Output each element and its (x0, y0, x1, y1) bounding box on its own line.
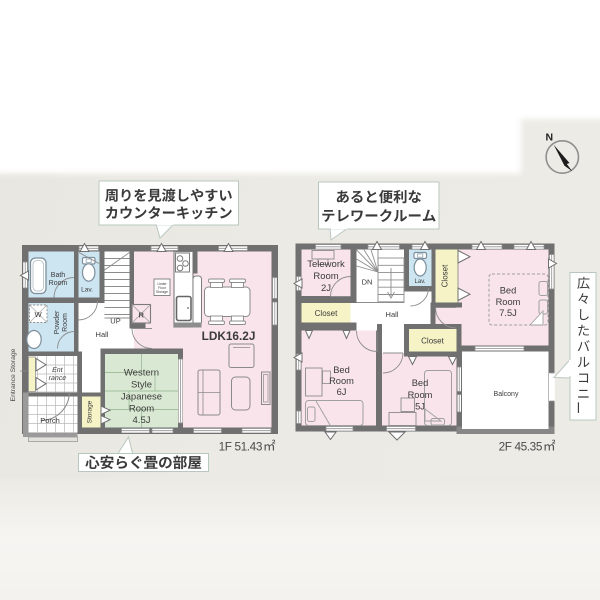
svg-text:Room: Room (329, 376, 354, 386)
svg-text:1F 51.43: 1F 51.43 (219, 440, 263, 454)
svg-text:W: W (35, 310, 43, 319)
svg-text:4.5J: 4.5J (133, 415, 151, 426)
svg-text:Closet: Closet (315, 309, 338, 318)
svg-text:Closet: Closet (421, 337, 444, 346)
svg-text:Ent: Ent (51, 367, 63, 374)
svg-text:Balcony: Balcony (494, 391, 519, 398)
svg-text:Style: Style (131, 380, 152, 391)
svg-text:Storage: Storage (87, 400, 94, 423)
svg-text:rance: rance (48, 375, 67, 382)
svg-text:Room: Room (62, 313, 69, 332)
svg-text:Room: Room (49, 280, 68, 287)
svg-text:Powder: Powder (54, 310, 61, 334)
svg-text:LDK16.2J: LDK16.2J (202, 329, 256, 343)
svg-text:R: R (138, 311, 144, 320)
svg-text:Entrance Storage: Entrance Storage (10, 348, 17, 401)
svg-text:Lav.: Lav. (81, 287, 93, 294)
svg-text:N: N (546, 132, 554, 144)
svg-text:DN: DN (362, 278, 373, 287)
svg-text:Telework: Telework (307, 259, 345, 270)
svg-text:Storage: Storage (156, 290, 168, 294)
svg-text:Room: Room (313, 271, 338, 282)
svg-text:Room: Room (408, 390, 433, 400)
svg-text:Japanese: Japanese (121, 392, 162, 403)
svg-text:Bed: Bed (412, 378, 429, 388)
svg-text:Hall: Hall (96, 330, 109, 339)
svg-text:Lav.: Lav. (415, 279, 426, 285)
svg-text:Porch: Porch (40, 416, 60, 425)
svg-text:Bath: Bath (51, 272, 66, 279)
svg-text:Bed: Bed (500, 286, 517, 296)
svg-text:6J: 6J (337, 387, 347, 397)
svg-text:7.5J: 7.5J (499, 308, 517, 318)
svg-text:2J: 2J (321, 283, 331, 294)
svg-text:2F 45.35: 2F 45.35 (499, 440, 543, 454)
svg-text:Room: Room (129, 404, 154, 415)
svg-text:Closet: Closet (441, 264, 450, 287)
svg-text:Room: Room (496, 297, 521, 307)
svg-text:5J: 5J (415, 402, 425, 412)
svg-text:UP: UP (110, 317, 120, 326)
svg-text:Hall: Hall (386, 310, 399, 319)
svg-text:Bed: Bed (333, 365, 350, 375)
svg-text:Western: Western (124, 368, 159, 379)
